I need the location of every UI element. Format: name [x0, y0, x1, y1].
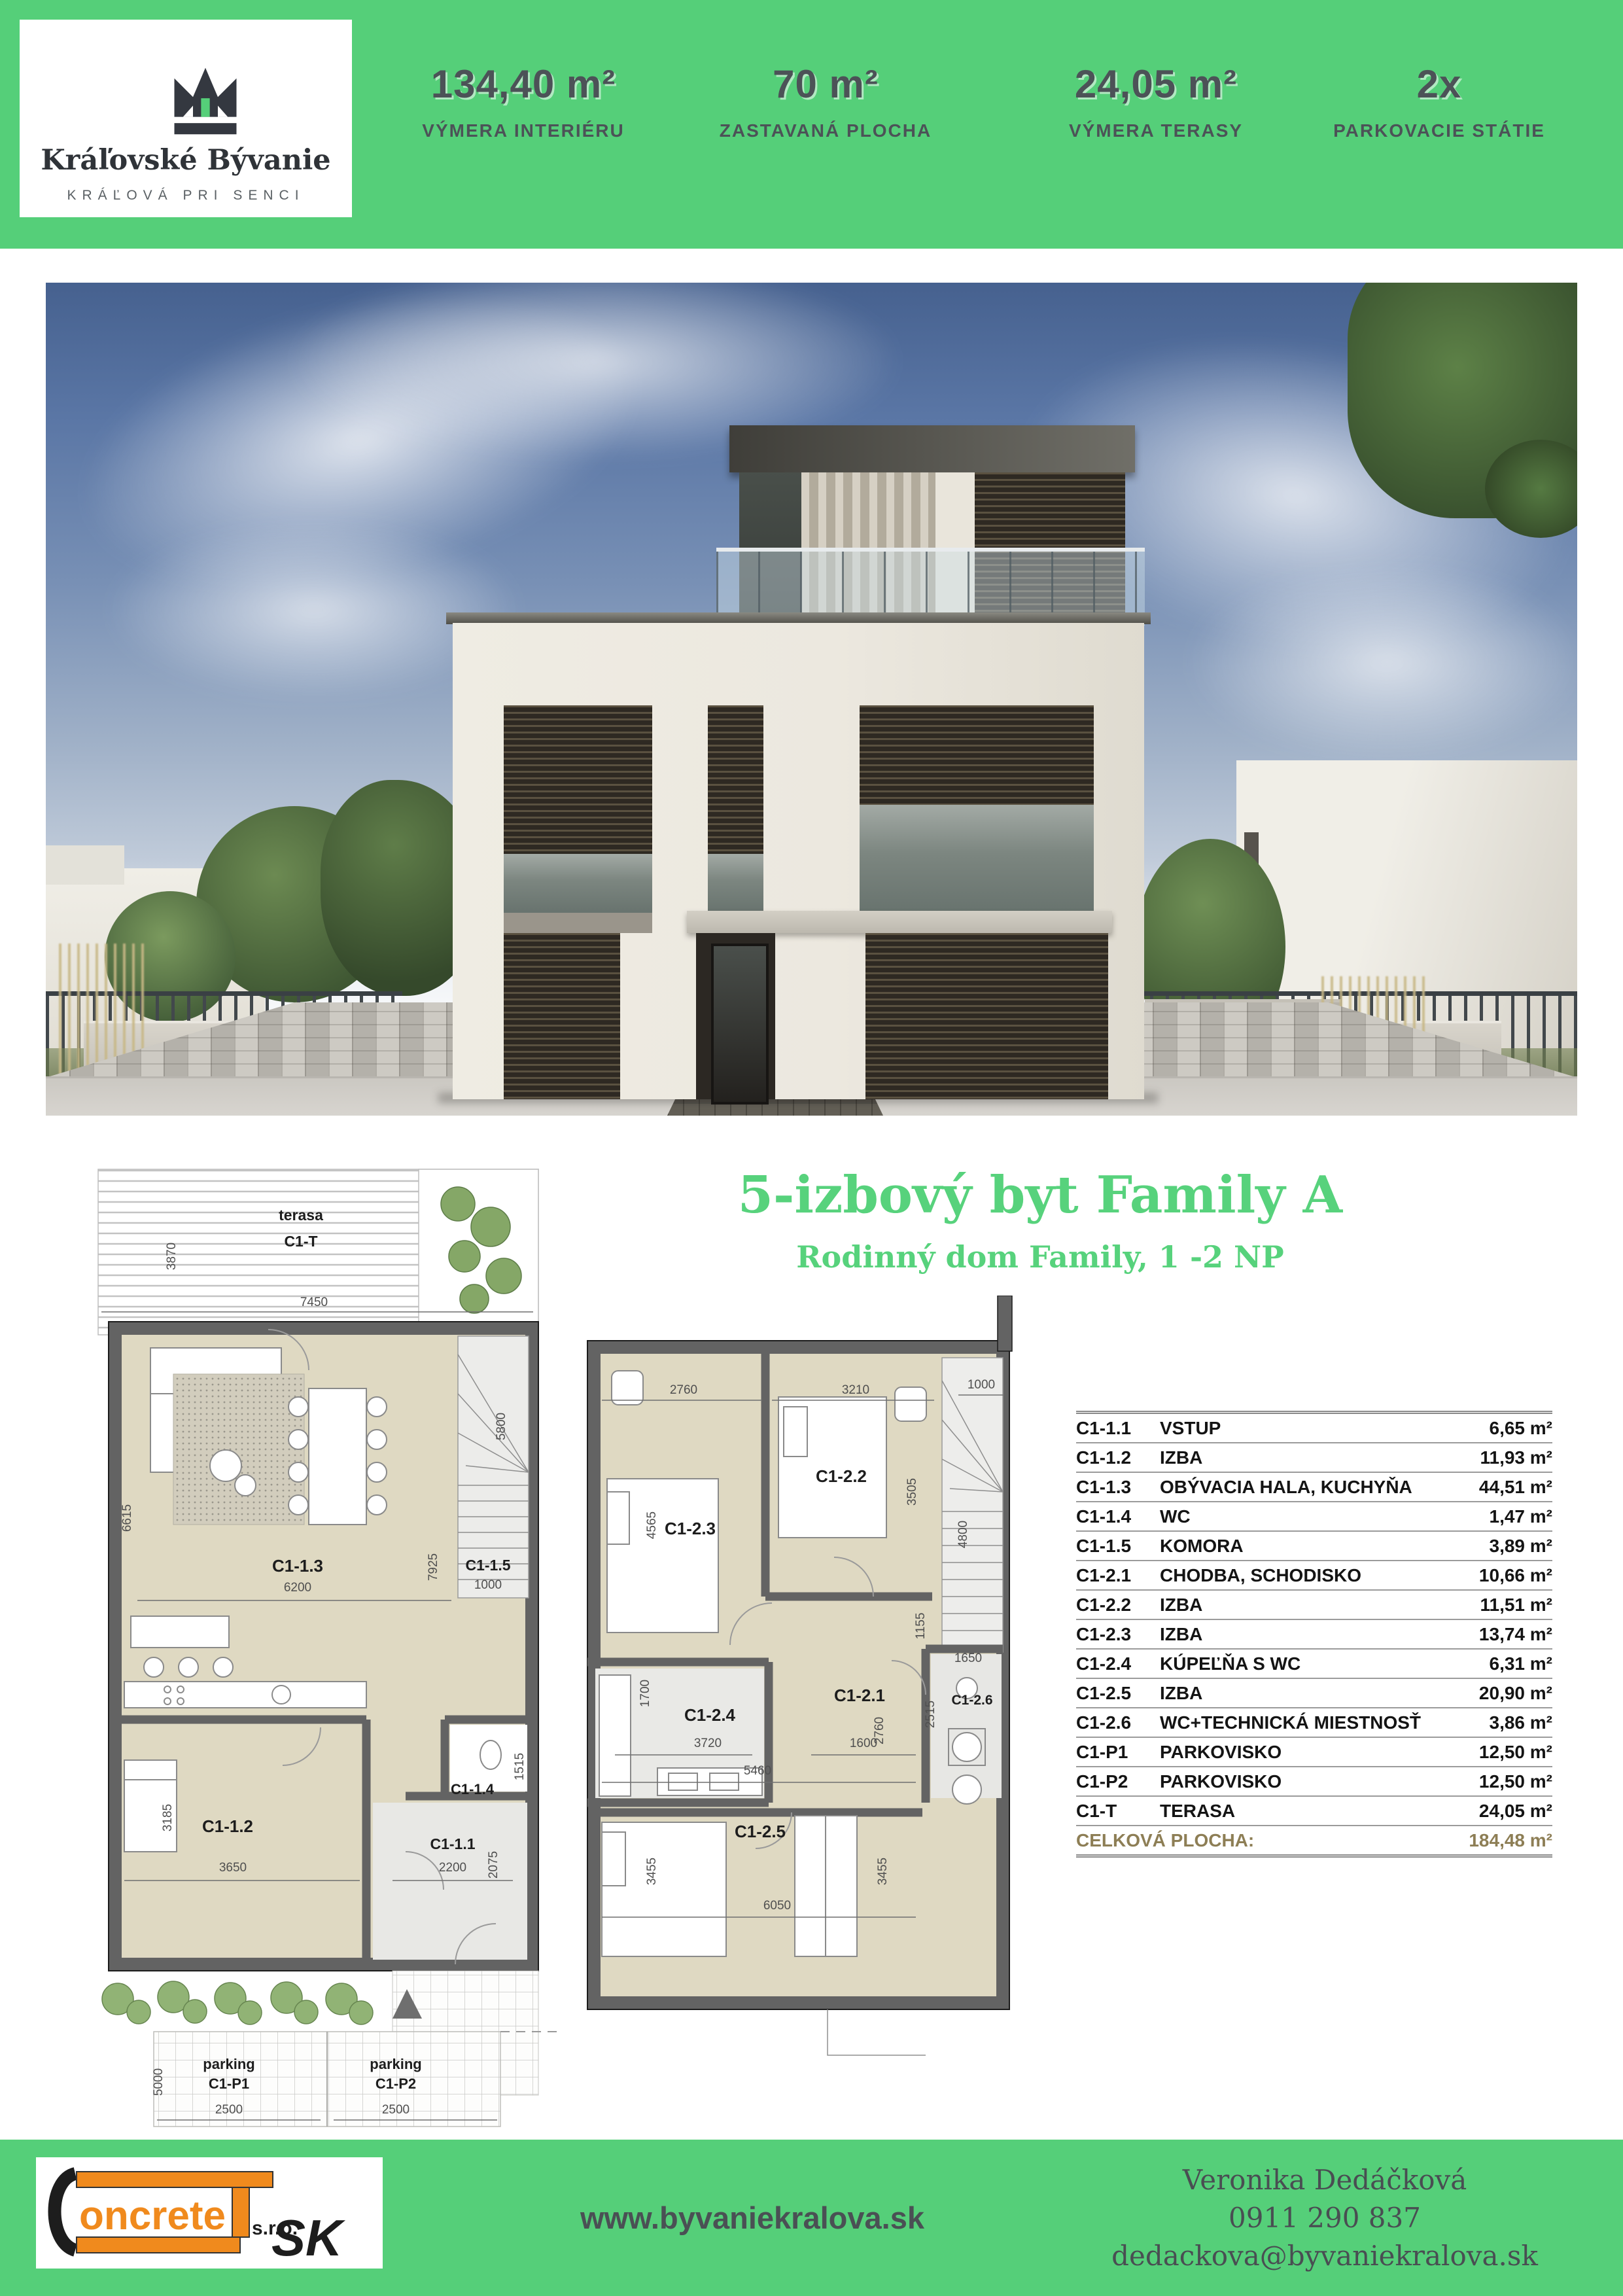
ground-floor-plan: terasa C1-T 3870 7450 [39, 1158, 563, 2143]
stat-parking: 2x PARKOVACIE STÁTIE [1269, 63, 1609, 140]
dim: 1000 [474, 1578, 502, 1592]
row-code: C1-1.5 [1076, 1537, 1160, 1555]
dining-table [309, 1388, 366, 1525]
apartment-subtitle: Rodinný dom Family, 1 -2 NP [451, 1242, 1623, 1272]
dim: 2760 [670, 1383, 697, 1397]
row-value: 6,65 m² [1441, 1419, 1552, 1438]
dim: 1650 [954, 1651, 982, 1665]
bathtub [599, 1675, 631, 1796]
upper-floor-body: 2760 3210 1000 C1-2.3 4565 C1-2.2 3505 4… [587, 1296, 1012, 2055]
brand-logo-card: Kráľovské Bývanie KRÁĽOVÁ PRI SENCI [20, 20, 352, 217]
entrance-door [711, 944, 769, 1104]
dim: 1155 [914, 1613, 928, 1640]
ground-floor-body: C1-1.3 6200 6615 7925 5800 C1-1.5 1000 C… [109, 1322, 538, 1971]
stat-label: PARKOVACIE STÁTIE [1269, 122, 1609, 140]
entry-hall [373, 1803, 527, 1960]
stat-label: ZASTAVANÁ PLOCHA [655, 122, 996, 140]
row-code: C1-T [1076, 1802, 1160, 1820]
dim: 3650 [219, 1861, 247, 1875]
table-row: C1-TTERASA24,05 m² [1076, 1795, 1552, 1825]
row-value: 3,86 m² [1441, 1714, 1552, 1732]
table-total-row: CELKOVÁ PLOCHA:184,48 m² [1076, 1825, 1552, 1854]
agent-phone: 0911 290 837 [1060, 2204, 1590, 2232]
row-name: OBÝVACIA HALA, KUCHYŇA [1160, 1478, 1441, 1496]
table-row: C1-2.5IZBA20,90 m² [1076, 1678, 1552, 1707]
armchair [612, 1371, 643, 1405]
row-value: 13,74 m² [1441, 1625, 1552, 1644]
parking-label: parking [203, 2056, 254, 2072]
row-value: 3,89 m² [1441, 1537, 1552, 1555]
parking-label: parking [370, 2056, 421, 2072]
row-value: 44,51 m² [1441, 1478, 1552, 1496]
contact-block: Veronika Dedáčková 0911 290 837 dedackov… [1060, 2140, 1590, 2296]
cloud [1191, 564, 1577, 760]
table-row: C1-1.1VSTUP6,65 m² [1076, 1414, 1552, 1442]
dim: 7925 [427, 1553, 440, 1581]
total-label: CELKOVÁ PLOCHA: [1076, 1831, 1441, 1850]
room-label: C1-1.4 [451, 1781, 495, 1797]
stat-value: 70 m² [655, 63, 996, 106]
agent-name: Veronika Dedáčková [1060, 2166, 1590, 2194]
dim: 2200 [439, 1861, 466, 1875]
upper-mid-window-glass [708, 854, 763, 913]
dim: 6615 [120, 1504, 134, 1532]
row-name: PARKOVISKO [1160, 1773, 1441, 1791]
upper-mid-window-slats [708, 705, 763, 854]
stat-value: 2x [1269, 63, 1609, 106]
upper-left-spandrel [504, 913, 652, 933]
table-row: C1-2.6WC+TECHNICKÁ MIESTNOSŤ3,86 m² [1076, 1707, 1552, 1737]
room-label: C1-2.6 [951, 1693, 992, 1708]
site-works: parking C1-P1 parking C1-P2 2500 2500 50… [102, 1971, 563, 2127]
table-row: C1-P1PARKOVISKO12,50 m² [1076, 1737, 1552, 1766]
table-row: C1-2.2IZBA11,51 m² [1076, 1589, 1552, 1619]
room-label: C1-1.5 [465, 1557, 510, 1574]
row-code: C1-1.3 [1076, 1478, 1160, 1496]
room-label: C1-2.1 [834, 1686, 885, 1705]
row-code: C1-2.2 [1076, 1596, 1160, 1614]
room-label: C1-2.4 [684, 1705, 736, 1725]
dim: 2500 [382, 2103, 410, 2117]
upper-left-window-slats [504, 705, 652, 854]
room-label: C1-2.2 [816, 1466, 867, 1486]
dim: 3455 [876, 1858, 890, 1885]
parking-code: C1-P1 [209, 2075, 249, 2092]
table-row: C1-2.3IZBA13,74 m² [1076, 1619, 1552, 1648]
dim: 5460 [744, 1764, 771, 1778]
website-link[interactable]: www.byvaniekralova.sk [517, 2140, 988, 2296]
area-table: C1-1.1VSTUP6,65 m² C1-1.2IZBA11,93 m² C1… [1076, 1411, 1552, 1858]
terrace-code: C1-T [284, 1233, 317, 1250]
table-row: C1-1.5KOMORA3,89 m² [1076, 1530, 1552, 1560]
dim: 3455 [645, 1858, 659, 1885]
room-label: C1-2.5 [735, 1822, 786, 1841]
kitchen-island [131, 1616, 229, 1648]
logo-word: oncrete [79, 2193, 226, 2238]
crown-icon [168, 58, 243, 143]
row-code: C1-2.1 [1076, 1566, 1160, 1585]
shrub-row [102, 1981, 373, 2024]
stat-label: VÝMERA INTERIÉRU [353, 122, 693, 140]
lower-left-window-slats [504, 933, 620, 1099]
dim: 1700 [638, 1680, 652, 1707]
dim: 4800 [956, 1521, 970, 1548]
table-row: C1-2.4KÚPEĽŇA S WC6,31 m² [1076, 1648, 1552, 1678]
row-name: IZBA [1160, 1684, 1441, 1703]
dim: 6200 [284, 1581, 311, 1595]
total-value: 184,48 m² [1441, 1831, 1552, 1850]
brand-name: Kráľovské Bývanie [20, 145, 352, 176]
table-row: C1-1.4WC1,47 m² [1076, 1501, 1552, 1530]
row-name: VSTUP [1160, 1419, 1441, 1438]
penthouse-roof [729, 425, 1135, 472]
parking-code: C1-P2 [375, 2075, 416, 2092]
dim: 1000 [968, 1378, 995, 1392]
dim: 1600 [850, 1737, 877, 1750]
dim: 5000 [152, 2068, 166, 2096]
header-band: Kráľovské Bývanie KRÁĽOVÁ PRI SENCI 134,… [0, 0, 1623, 249]
dryer [952, 1775, 981, 1804]
leader-line [828, 2009, 926, 2055]
house-render-photo [46, 283, 1577, 1116]
dim: 2075 [487, 1851, 500, 1879]
left-neighbor-roof [46, 845, 124, 885]
row-value: 12,50 m² [1441, 1743, 1552, 1761]
logo-suffix: SK [271, 2209, 346, 2267]
row-name: WC+TECHNICKÁ MIESTNOSŤ [1160, 1714, 1441, 1732]
concrete-sk-logo-card: oncrete s.r.o. SK [36, 2157, 383, 2269]
table-row: C1-2.1CHODBA, SCHODISKO10,66 m² [1076, 1560, 1552, 1589]
brand-location: KRÁĽOVÁ PRI SENCI [20, 188, 352, 202]
dim: 3185 [161, 1804, 175, 1831]
dim: 2515 [924, 1701, 937, 1728]
row-value: 11,51 m² [1441, 1596, 1552, 1614]
dim: 5800 [495, 1413, 508, 1440]
terrace: terasa C1-T 3870 7450 [98, 1169, 538, 1335]
row-code: C1-2.4 [1076, 1655, 1160, 1673]
row-name: KOMORA [1160, 1537, 1441, 1555]
table-row: C1-1.2IZBA11,93 m² [1076, 1442, 1552, 1472]
dim-terrace-width: 7450 [300, 1296, 328, 1309]
row-code: C1-1.4 [1076, 1508, 1160, 1526]
row-value: 11,93 m² [1441, 1449, 1552, 1467]
row-value: 20,90 m² [1441, 1684, 1552, 1703]
room-label: C1-1.3 [272, 1556, 323, 1576]
apartment-title: 5-izbový byt Family A [451, 1170, 1623, 1221]
row-name: WC [1160, 1508, 1441, 1526]
row-name: IZBA [1160, 1596, 1441, 1614]
concrete-sk-logo: oncrete s.r.o. SK [36, 2157, 383, 2269]
coffee-table [210, 1450, 241, 1481]
row-name: TERASA [1160, 1802, 1441, 1820]
row-code: C1-P2 [1076, 1773, 1160, 1791]
room-label: C1-1.1 [430, 1835, 475, 1852]
dim: 3505 [905, 1478, 919, 1506]
dim: 3210 [842, 1383, 869, 1397]
room-label: C1-1.2 [202, 1816, 253, 1836]
upper-floor-plan: 2760 3210 1000 C1-2.3 4565 C1-2.2 3505 4… [576, 1296, 1034, 2081]
dim: 4565 [645, 1511, 659, 1539]
kitchen-counter [124, 1682, 366, 1708]
upper-right-window-slats [860, 705, 1094, 805]
row-code: C1-2.6 [1076, 1714, 1160, 1732]
row-value: 12,50 m² [1441, 1773, 1552, 1791]
row-code: C1-1.1 [1076, 1419, 1160, 1438]
stairs-area [942, 1358, 1003, 1652]
dim: 1515 [513, 1753, 527, 1780]
dim: 2500 [215, 2103, 243, 2117]
table-row: C1-1.3OBÝVACIA HALA, KUCHYŇA44,51 m² [1076, 1472, 1552, 1501]
rug [173, 1374, 304, 1525]
row-code: C1-2.3 [1076, 1625, 1160, 1644]
stat-interior-area: 134,40 m² VÝMERA INTERIÉRU [353, 63, 693, 140]
row-code: C1-2.5 [1076, 1684, 1160, 1703]
row-code: C1-1.2 [1076, 1449, 1160, 1467]
table-row: C1-P2PARKOVISKO12,50 m² [1076, 1766, 1552, 1795]
row-value: 24,05 m² [1441, 1802, 1552, 1820]
entrance-lintel [687, 911, 1112, 933]
dim: 6050 [763, 1899, 791, 1913]
row-value: 1,47 m² [1441, 1508, 1552, 1526]
row-name: IZBA [1160, 1449, 1441, 1467]
washer [952, 1733, 981, 1761]
dim-terrace-depth: 3870 [165, 1243, 179, 1270]
stat-built-area: 70 m² ZASTAVANÁ PLOCHA [655, 63, 996, 140]
toilet [480, 1740, 501, 1769]
upper-left-window-glass [504, 854, 652, 913]
row-value: 10,66 m² [1441, 1566, 1552, 1585]
logo-c-beam [55, 2174, 76, 2250]
stat-value: 134,40 m² [353, 63, 693, 106]
row-code: C1-P1 [1076, 1743, 1160, 1761]
upper-right-window-glass [860, 805, 1094, 913]
dim: 3720 [694, 1737, 722, 1750]
bar-stool [144, 1657, 164, 1677]
footer-band: oncrete s.r.o. SK www.byvaniekralova.sk … [0, 2140, 1623, 2296]
row-name: CHODBA, SCHODISKO [1160, 1566, 1441, 1585]
row-name: PARKOVISKO [1160, 1743, 1441, 1761]
lower-right-window-slats [865, 933, 1108, 1099]
agent-email[interactable]: dedackova@byvaniekralova.sk [1060, 2242, 1590, 2270]
row-value: 6,31 m² [1441, 1655, 1552, 1673]
row-name: KÚPEĽŇA S WC [1160, 1655, 1441, 1673]
row-name: IZBA [1160, 1625, 1441, 1644]
room-label: C1-2.3 [665, 1519, 716, 1538]
terrace-label: terasa [279, 1207, 323, 1224]
armchair [895, 1387, 926, 1421]
